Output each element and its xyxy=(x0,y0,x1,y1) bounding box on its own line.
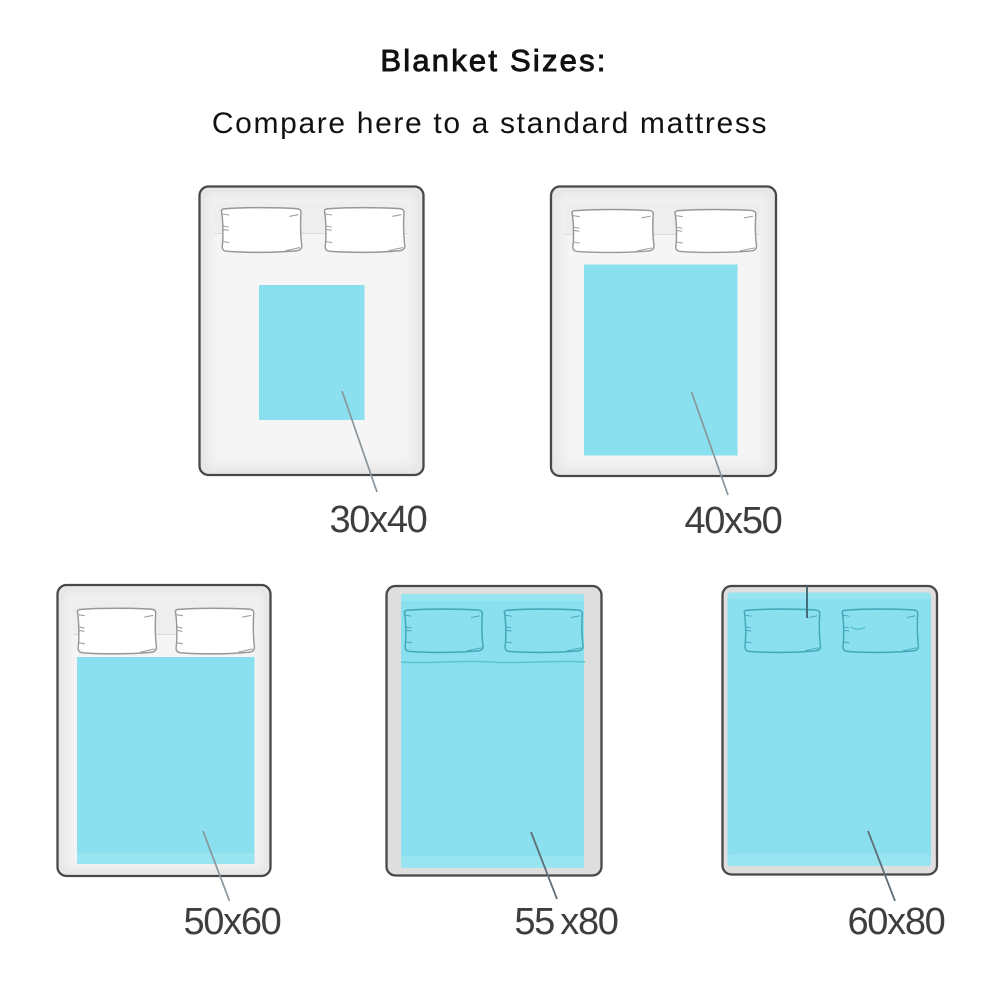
svg-text:Blanket Sizes:: Blanket Sizes: xyxy=(380,43,607,78)
svg-text:30x40: 30x40 xyxy=(329,499,426,541)
svg-text:40x50: 40x50 xyxy=(684,500,781,542)
svg-text:Compare here to a standard mat: Compare here to a standard mattress xyxy=(212,107,768,140)
svg-text:50x60: 50x60 xyxy=(183,901,280,943)
svg-text:60x80: 60x80 xyxy=(847,901,944,943)
svg-text:55 x80: 55 x80 xyxy=(514,901,617,943)
